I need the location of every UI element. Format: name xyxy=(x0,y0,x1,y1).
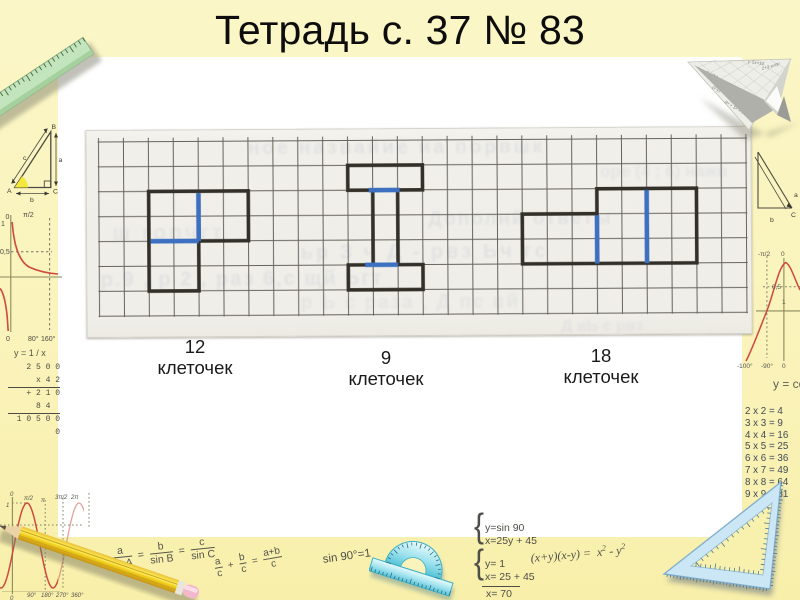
svg-text:0: 0 xyxy=(6,336,10,343)
svg-text:0: 0 xyxy=(782,363,786,370)
svg-text:1: 1 xyxy=(782,299,786,306)
svg-text:0: 0 xyxy=(781,251,785,258)
svg-text:160°: 160° xyxy=(41,335,56,343)
svg-text:b: b xyxy=(770,217,774,224)
svg-text:b: b xyxy=(30,197,34,204)
svg-text:A: A xyxy=(7,188,12,195)
svg-text:C: C xyxy=(53,189,58,196)
svg-text:Д иЬ с рвз: Д иЬ с рвз xyxy=(561,318,644,336)
svg-text:р.9 , р 2 , раз 6,с щй Ьгт: р.9 , р 2 , раз 6,с щй Ьгт xyxy=(100,267,383,291)
svg-text:р Ь с раза , Д пс вй: р Ь с раза , Д пс вй xyxy=(300,291,519,313)
svg-text:π/2: π/2 xyxy=(23,212,34,219)
svg-text:1: 1 xyxy=(1,221,5,228)
svg-text:C: C xyxy=(791,212,796,219)
svg-text:a: a xyxy=(794,192,798,199)
svg-text:B: B xyxy=(52,124,57,131)
svg-text:ьр З ч Д - рвз Ьч гс: ьр З ч Д - рвз Ьч гс xyxy=(300,240,548,264)
svg-text:0,5: 0,5 xyxy=(0,249,10,256)
svg-text:Дополнй ответы: Дополнй ответы xyxy=(428,208,612,230)
svg-text:-100°: -100° xyxy=(737,362,753,370)
svg-text:0,5: 0,5 xyxy=(772,284,781,291)
svg-text:y = 1 / x: y = 1 / x xyxy=(14,348,46,358)
svg-text:c: c xyxy=(23,155,27,162)
svg-text:-90°: -90° xyxy=(761,362,773,370)
svg-text:0: 0 xyxy=(6,214,10,221)
svg-text:80°: 80° xyxy=(28,335,39,343)
svg-text:a: a xyxy=(59,157,63,164)
